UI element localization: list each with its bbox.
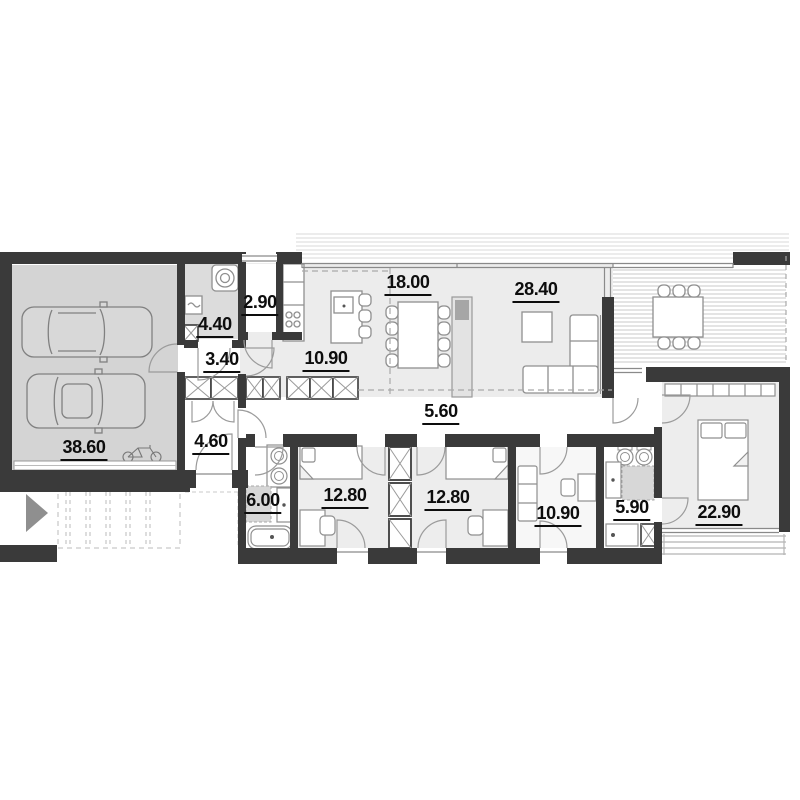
chair-icon [658, 285, 670, 297]
pillow-icon [302, 448, 315, 462]
room-label-garage: 38.60 [60, 437, 107, 461]
stool-icon [359, 326, 371, 338]
chair-icon [468, 516, 483, 535]
pillow-icon [701, 423, 722, 438]
fireplace-icon [452, 297, 472, 397]
room-label-bathroom: 6.00 [244, 490, 281, 514]
room-label-study: 10.90 [534, 503, 581, 527]
sink-icon [271, 468, 287, 484]
room-label-master-bedroom: 22.90 [695, 502, 742, 526]
entrance-arrow-icon [26, 494, 48, 532]
car-icon [22, 302, 152, 362]
room-label-dining: 18.00 [384, 272, 431, 296]
chair-icon [438, 306, 450, 319]
car-icon [27, 369, 145, 433]
dining-table [386, 302, 450, 368]
room-label-bedroom1: 12.80 [321, 485, 368, 509]
chair-icon [688, 285, 700, 297]
desk-icon [483, 510, 508, 546]
room-label-corridor: 5.60 [422, 401, 459, 425]
coffee-table [522, 312, 552, 342]
stool-icon [359, 294, 371, 306]
pillow-icon [493, 448, 506, 462]
room-label-entry: 4.60 [192, 431, 229, 455]
desk-icon [578, 474, 596, 501]
chair-icon [320, 516, 335, 535]
room-label-bathroom2: 5.90 [613, 497, 650, 521]
shower-area [622, 466, 654, 500]
shower-tray-icon [606, 524, 638, 546]
room-label-bedroom2: 12.80 [424, 487, 471, 511]
chair-icon [386, 322, 398, 335]
chair-icon [438, 354, 450, 367]
pillow-icon [725, 423, 746, 438]
floor-plan-canvas: 38.60 4.40 2.90 3.40 10.90 18.00 28.40 4… [0, 0, 800, 800]
terrace-steps [662, 534, 786, 555]
kitchen-counter [283, 264, 304, 341]
floor-plan-drawing [0, 0, 800, 800]
chair-icon [658, 337, 670, 349]
room-label-utility: 4.40 [196, 314, 233, 338]
water-heater-icon [212, 265, 238, 291]
room-label-vestibule: 3.40 [203, 349, 240, 373]
chair-icon [673, 337, 685, 349]
eaves-lines [296, 234, 789, 258]
chair-icon [438, 338, 450, 351]
washing-machine-icon [185, 296, 202, 314]
chair-icon [673, 285, 685, 297]
chair-icon [438, 322, 450, 335]
chair-icon [386, 354, 398, 367]
chair-icon [386, 338, 398, 351]
stool-icon [359, 310, 371, 322]
chair-icon [561, 479, 575, 496]
chair-icon [688, 337, 700, 349]
kitchen-island [331, 291, 371, 343]
wardrobe-cabinets [389, 447, 411, 548]
driveway-paving [58, 490, 238, 548]
room-label-pantry: 2.90 [241, 292, 278, 316]
room-label-kitchen: 10.90 [302, 348, 349, 372]
room-label-living: 28.40 [512, 279, 559, 303]
hall-nook-floor [613, 382, 662, 434]
sink-icon [636, 449, 652, 465]
closet-row [185, 377, 358, 399]
bathtub-icon [248, 526, 292, 549]
chair-icon [386, 306, 398, 319]
terrace-table [653, 285, 703, 349]
